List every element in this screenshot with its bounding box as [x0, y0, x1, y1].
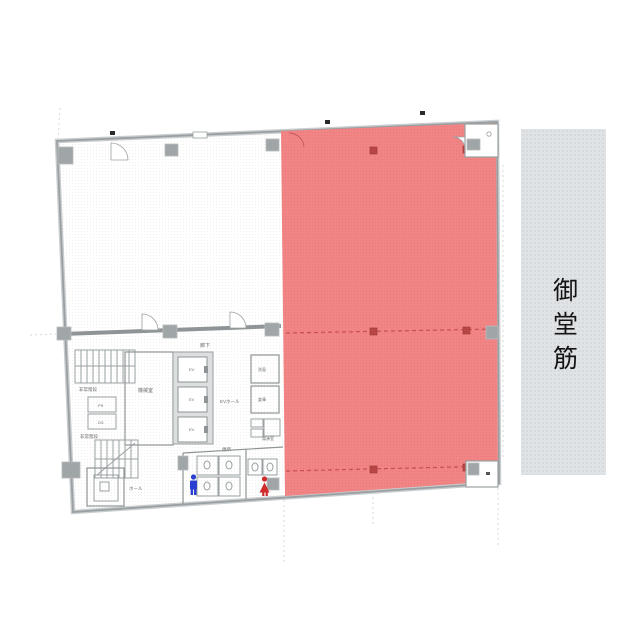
- elevator-3-label: EV: [189, 427, 195, 432]
- column: [486, 326, 498, 339]
- highlighted-area: [281, 123, 498, 496]
- room-b-label: 倉庫: [258, 396, 266, 402]
- column: [62, 462, 80, 478]
- shaft-1-label: PS: [98, 403, 104, 408]
- ev-hall-label: EVホール: [220, 399, 240, 404]
- toilet-label: 便所: [222, 446, 231, 453]
- street-band: 御堂筋: [521, 129, 606, 475]
- shaft-2-label: DS: [98, 420, 104, 425]
- elevator-1-label: EV: [189, 367, 195, 372]
- pantry-label: 湯沸室: [262, 435, 274, 441]
- machine-room-label: 機械室: [138, 387, 153, 394]
- corridor-label: 廊下: [200, 342, 210, 349]
- street-name-label: 御堂筋: [546, 277, 582, 379]
- hall-label: ホール: [129, 486, 143, 491]
- stairs-lower-label: 非常階段: [80, 433, 98, 440]
- elevator-bank: EV EV EV: [173, 352, 213, 444]
- floorplan-page: 廊下 非常階段 PS DS 機械室 EV EV EV: [0, 0, 630, 630]
- stairs-upper-label: 非常階段: [79, 386, 97, 393]
- elevator-2-label: EV: [189, 397, 195, 402]
- room-a-label: 洗面: [258, 366, 266, 372]
- corner-column: [58, 147, 73, 164]
- bottom-right-room: [466, 461, 498, 487]
